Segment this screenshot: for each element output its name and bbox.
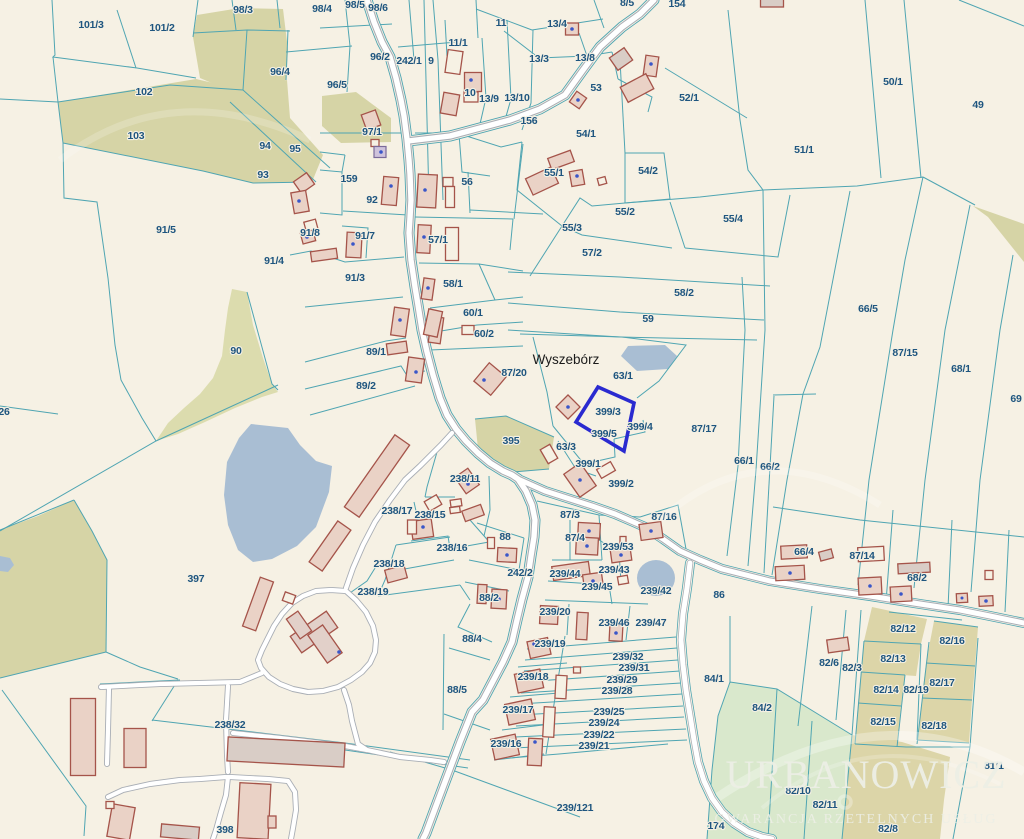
svg-text:URBANOWICZ: URBANOWICZ bbox=[725, 752, 1006, 797]
svg-text:54/1: 54/1 bbox=[576, 128, 596, 140]
svg-text:239/121: 239/121 bbox=[557, 802, 594, 814]
svg-text:90: 90 bbox=[230, 345, 242, 357]
svg-text:87/15: 87/15 bbox=[892, 347, 918, 359]
svg-text:159: 159 bbox=[341, 173, 358, 185]
svg-text:13/3: 13/3 bbox=[529, 53, 549, 65]
svg-text:101/3: 101/3 bbox=[78, 19, 104, 31]
svg-text:54/2: 54/2 bbox=[638, 165, 658, 177]
svg-text:13/8: 13/8 bbox=[575, 52, 595, 64]
svg-text:397: 397 bbox=[188, 573, 205, 585]
svg-text:82/6: 82/6 bbox=[819, 657, 839, 669]
svg-text:88/2: 88/2 bbox=[479, 592, 499, 604]
svg-text:96/5: 96/5 bbox=[327, 79, 347, 91]
svg-text:89/1: 89/1 bbox=[366, 346, 386, 358]
svg-text:63/3: 63/3 bbox=[556, 441, 576, 453]
svg-text:57/2: 57/2 bbox=[582, 247, 602, 259]
svg-text:238/19: 238/19 bbox=[358, 586, 389, 598]
svg-text:238/17: 238/17 bbox=[382, 505, 413, 517]
svg-text:11/1: 11/1 bbox=[448, 37, 467, 49]
svg-text:82/14: 82/14 bbox=[873, 684, 899, 696]
svg-text:93: 93 bbox=[257, 169, 269, 181]
svg-text:60/1: 60/1 bbox=[463, 307, 483, 319]
svg-text:96/2: 96/2 bbox=[370, 51, 390, 63]
svg-text:154: 154 bbox=[669, 0, 686, 10]
svg-text:91/4: 91/4 bbox=[264, 255, 284, 267]
svg-text:87/20: 87/20 bbox=[501, 367, 527, 379]
svg-text:239/20: 239/20 bbox=[540, 606, 571, 618]
svg-text:68/1: 68/1 bbox=[951, 363, 971, 375]
svg-text:53: 53 bbox=[590, 82, 602, 94]
svg-text:238/15: 238/15 bbox=[415, 509, 446, 521]
svg-text:82/15: 82/15 bbox=[870, 716, 896, 728]
svg-text:239/16: 239/16 bbox=[491, 738, 522, 750]
svg-text:239/44: 239/44 bbox=[550, 568, 581, 580]
svg-text:88/5: 88/5 bbox=[447, 684, 467, 696]
svg-text:399/1: 399/1 bbox=[575, 458, 601, 470]
svg-text:11: 11 bbox=[496, 17, 507, 29]
svg-text:55/1: 55/1 bbox=[544, 167, 564, 179]
svg-text:55/4: 55/4 bbox=[723, 213, 743, 225]
svg-text:57/1: 57/1 bbox=[428, 234, 448, 246]
svg-text:10: 10 bbox=[464, 87, 476, 99]
svg-text:238/32: 238/32 bbox=[215, 719, 246, 731]
svg-text:94: 94 bbox=[259, 140, 271, 152]
svg-text:82/13: 82/13 bbox=[880, 653, 906, 665]
svg-text:91/7: 91/7 bbox=[355, 230, 375, 242]
svg-text:63/1: 63/1 bbox=[613, 370, 633, 382]
svg-text:96/4: 96/4 bbox=[270, 66, 290, 78]
svg-text:55/3: 55/3 bbox=[562, 222, 582, 234]
svg-text:88: 88 bbox=[499, 531, 511, 543]
svg-text:242/2: 242/2 bbox=[507, 567, 533, 579]
svg-text:98/4: 98/4 bbox=[312, 3, 332, 15]
svg-text:66/5: 66/5 bbox=[858, 303, 878, 315]
svg-text:88/4: 88/4 bbox=[462, 633, 482, 645]
svg-text:239/47: 239/47 bbox=[636, 617, 667, 629]
svg-text:395: 395 bbox=[503, 435, 520, 447]
svg-text:239/53: 239/53 bbox=[603, 541, 634, 553]
svg-text:13/4: 13/4 bbox=[547, 18, 567, 30]
svg-text:399/3: 399/3 bbox=[595, 406, 621, 418]
svg-text:156: 156 bbox=[521, 115, 538, 127]
svg-text:97/1: 97/1 bbox=[362, 126, 382, 138]
svg-text:91/5: 91/5 bbox=[156, 224, 176, 236]
svg-text:95: 95 bbox=[289, 143, 301, 155]
svg-text:49: 49 bbox=[972, 99, 984, 111]
svg-text:239/19: 239/19 bbox=[535, 638, 566, 650]
svg-text:89/2: 89/2 bbox=[356, 380, 376, 392]
svg-text:8/5: 8/5 bbox=[620, 0, 634, 9]
svg-text:56: 56 bbox=[461, 176, 473, 188]
svg-text:82/17: 82/17 bbox=[929, 677, 955, 689]
svg-text:238/11: 238/11 bbox=[450, 473, 481, 485]
svg-text:101/2: 101/2 bbox=[149, 22, 175, 34]
svg-text:98/3: 98/3 bbox=[233, 4, 253, 16]
svg-text:84/2: 84/2 bbox=[752, 702, 772, 714]
svg-text:239/45: 239/45 bbox=[582, 581, 613, 593]
svg-text:82/12: 82/12 bbox=[890, 623, 916, 635]
svg-text:60/2: 60/2 bbox=[474, 328, 494, 340]
svg-text:GWARANCJA RZETELNYCH USŁUG: GWARANCJA RZETELNYCH USŁUG bbox=[715, 812, 998, 827]
svg-text:239/28: 239/28 bbox=[602, 685, 633, 697]
svg-text:52/1: 52/1 bbox=[679, 92, 699, 104]
svg-text:98/6: 98/6 bbox=[368, 2, 388, 14]
svg-text:399/4: 399/4 bbox=[627, 421, 653, 433]
svg-text:82/18: 82/18 bbox=[921, 720, 947, 732]
svg-text:239/18: 239/18 bbox=[518, 671, 549, 683]
svg-text:86: 86 bbox=[713, 589, 725, 601]
svg-text:9: 9 bbox=[428, 55, 434, 67]
svg-text:69: 69 bbox=[1010, 393, 1022, 405]
svg-text:84/1: 84/1 bbox=[704, 673, 724, 685]
svg-text:68/2: 68/2 bbox=[907, 572, 927, 584]
svg-text:239/43: 239/43 bbox=[599, 564, 630, 576]
svg-text:242/1: 242/1 bbox=[396, 55, 422, 67]
svg-text:239/46: 239/46 bbox=[599, 617, 630, 629]
svg-text:66/4: 66/4 bbox=[794, 546, 814, 558]
svg-text:238/16: 238/16 bbox=[437, 542, 468, 554]
svg-text:239/31: 239/31 bbox=[619, 662, 650, 674]
svg-text:66/1: 66/1 bbox=[734, 455, 754, 467]
svg-text:59: 59 bbox=[642, 313, 654, 325]
svg-text:55/2: 55/2 bbox=[615, 206, 635, 218]
svg-text:238/18: 238/18 bbox=[374, 558, 405, 570]
svg-text:239/17: 239/17 bbox=[503, 704, 534, 716]
svg-text:87/17: 87/17 bbox=[691, 423, 717, 435]
svg-text:58/1: 58/1 bbox=[443, 278, 463, 290]
svg-text:58/2: 58/2 bbox=[674, 287, 694, 299]
svg-text:13/10: 13/10 bbox=[504, 92, 530, 104]
svg-text:26: 26 bbox=[0, 406, 10, 418]
svg-text:239/24: 239/24 bbox=[589, 717, 620, 729]
svg-text:398: 398 bbox=[217, 824, 234, 836]
svg-text:399/5: 399/5 bbox=[591, 428, 617, 440]
svg-text:82/19: 82/19 bbox=[903, 684, 929, 696]
svg-text:239/21: 239/21 bbox=[579, 740, 610, 752]
svg-text:82/16: 82/16 bbox=[939, 635, 965, 647]
svg-text:239/42: 239/42 bbox=[641, 585, 672, 597]
svg-text:87/3: 87/3 bbox=[560, 509, 580, 521]
svg-text:91/8: 91/8 bbox=[300, 227, 320, 239]
svg-text:51/1: 51/1 bbox=[794, 144, 814, 156]
svg-text:82/11: 82/11 bbox=[813, 799, 838, 811]
svg-text:87/4: 87/4 bbox=[565, 532, 585, 544]
svg-text:50/1: 50/1 bbox=[883, 76, 903, 88]
svg-text:87/14: 87/14 bbox=[849, 550, 875, 562]
svg-text:399/2: 399/2 bbox=[608, 478, 634, 490]
svg-text:98/5: 98/5 bbox=[345, 0, 365, 11]
svg-text:92: 92 bbox=[366, 194, 378, 206]
svg-text:103: 103 bbox=[128, 130, 145, 142]
svg-text:82/3: 82/3 bbox=[842, 662, 862, 674]
svg-text:102: 102 bbox=[136, 86, 153, 98]
svg-text:13/9: 13/9 bbox=[479, 93, 499, 105]
svg-text:91/3: 91/3 bbox=[345, 272, 365, 284]
svg-text:Wyszebórz: Wyszebórz bbox=[533, 352, 600, 367]
